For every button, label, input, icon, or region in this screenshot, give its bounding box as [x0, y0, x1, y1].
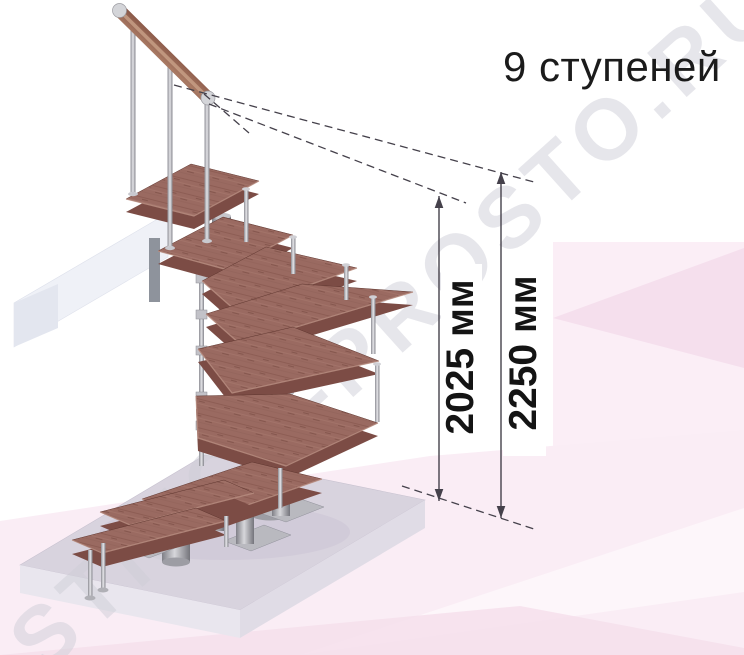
- rod-foot: [98, 588, 109, 593]
- starter-rod: [101, 543, 106, 589]
- baluster-foot: [128, 192, 138, 196]
- baluster: [168, 58, 173, 248]
- baluster-foot: [165, 246, 175, 250]
- connector-rod: [371, 296, 376, 354]
- dimension-label-2250: 2250 мм: [502, 275, 545, 430]
- baluster-foot: [202, 239, 212, 243]
- handrail-end-cap: [113, 4, 127, 18]
- dimension-arrow: [435, 196, 444, 208]
- upper-extension-dashed-line: [174, 85, 534, 182]
- baluster: [131, 22, 136, 194]
- cylinder-base: [162, 558, 190, 567]
- connector-rod: [291, 236, 296, 274]
- step-count-title: 9 ступеней: [503, 43, 721, 90]
- stair-diagram: LESTNICA-PROSTO.RU: [0, 0, 744, 655]
- rod-foot: [85, 596, 96, 601]
- connector-rod: [375, 363, 380, 422]
- dimension-label-2025: 2025 мм: [439, 279, 482, 434]
- stair-tread: [126, 164, 259, 229]
- connector-rod: [244, 188, 249, 242]
- starter-rod: [88, 550, 93, 596]
- beam-bracket: [149, 238, 160, 302]
- connector-rod: [278, 468, 283, 508]
- connector-rod: [224, 516, 229, 547]
- connector-rod: [344, 264, 349, 300]
- baluster: [205, 95, 210, 241]
